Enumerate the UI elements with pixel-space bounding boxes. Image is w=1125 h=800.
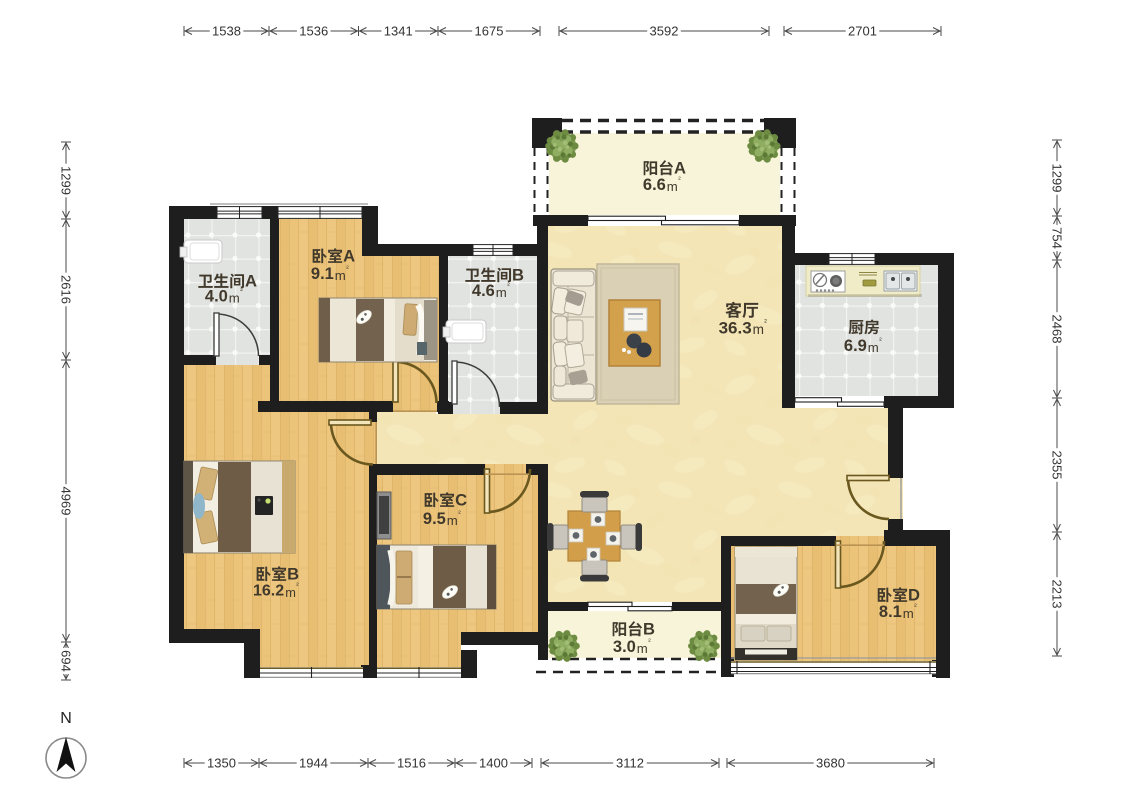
svg-text:2355: 2355 xyxy=(1050,451,1065,480)
svg-text:1536: 1536 xyxy=(299,24,328,39)
svg-text:2213: 2213 xyxy=(1050,580,1065,609)
svg-text:m: m xyxy=(285,585,296,600)
svg-text:A: A xyxy=(343,247,355,266)
svg-text:4969: 4969 xyxy=(59,487,74,516)
svg-text:A: A xyxy=(245,272,257,291)
svg-text:m: m xyxy=(496,285,507,300)
svg-text:B: B xyxy=(512,266,524,285)
svg-text:2468: 2468 xyxy=(1050,315,1065,344)
svg-text:16.2: 16.2 xyxy=(253,583,284,600)
svg-text:1350: 1350 xyxy=(207,756,236,771)
svg-text:3680: 3680 xyxy=(816,756,845,771)
svg-text:1516: 1516 xyxy=(397,756,426,771)
svg-text:3112: 3112 xyxy=(616,756,644,771)
svg-text:m: m xyxy=(868,340,879,355)
svg-text:m: m xyxy=(903,606,914,621)
svg-text:6.6: 6.6 xyxy=(643,176,666,194)
svg-text:m: m xyxy=(753,322,764,337)
svg-text:36.3: 36.3 xyxy=(719,319,752,338)
svg-text:m: m xyxy=(637,641,648,656)
svg-text:m: m xyxy=(667,179,678,194)
svg-text:4.6: 4.6 xyxy=(472,282,495,300)
svg-text:m: m xyxy=(335,268,346,283)
svg-text:1299: 1299 xyxy=(1050,164,1065,193)
svg-text:1299: 1299 xyxy=(59,166,74,195)
svg-text:9.5: 9.5 xyxy=(423,510,446,528)
svg-text:²: ² xyxy=(764,317,767,326)
svg-text:m: m xyxy=(229,291,240,306)
svg-text:1400: 1400 xyxy=(479,756,508,771)
svg-text:6.9: 6.9 xyxy=(844,337,867,355)
svg-text:1675: 1675 xyxy=(475,24,504,39)
svg-text:N: N xyxy=(60,710,72,727)
svg-text:2701: 2701 xyxy=(848,24,877,39)
svg-text:3592: 3592 xyxy=(650,24,679,39)
svg-text:754: 754 xyxy=(1050,227,1065,249)
svg-text:1944: 1944 xyxy=(299,756,328,771)
svg-text:694: 694 xyxy=(59,650,74,672)
svg-text:4.0: 4.0 xyxy=(205,288,228,306)
svg-text:1341: 1341 xyxy=(384,24,413,39)
svg-text:m: m xyxy=(447,513,458,528)
svg-text:8.1: 8.1 xyxy=(879,603,902,621)
svg-text:C: C xyxy=(455,491,467,510)
svg-text:2616: 2616 xyxy=(59,275,74,304)
svg-text:9.1: 9.1 xyxy=(311,265,334,283)
svg-text:3.0: 3.0 xyxy=(613,638,636,656)
svg-text:1538: 1538 xyxy=(212,24,241,39)
